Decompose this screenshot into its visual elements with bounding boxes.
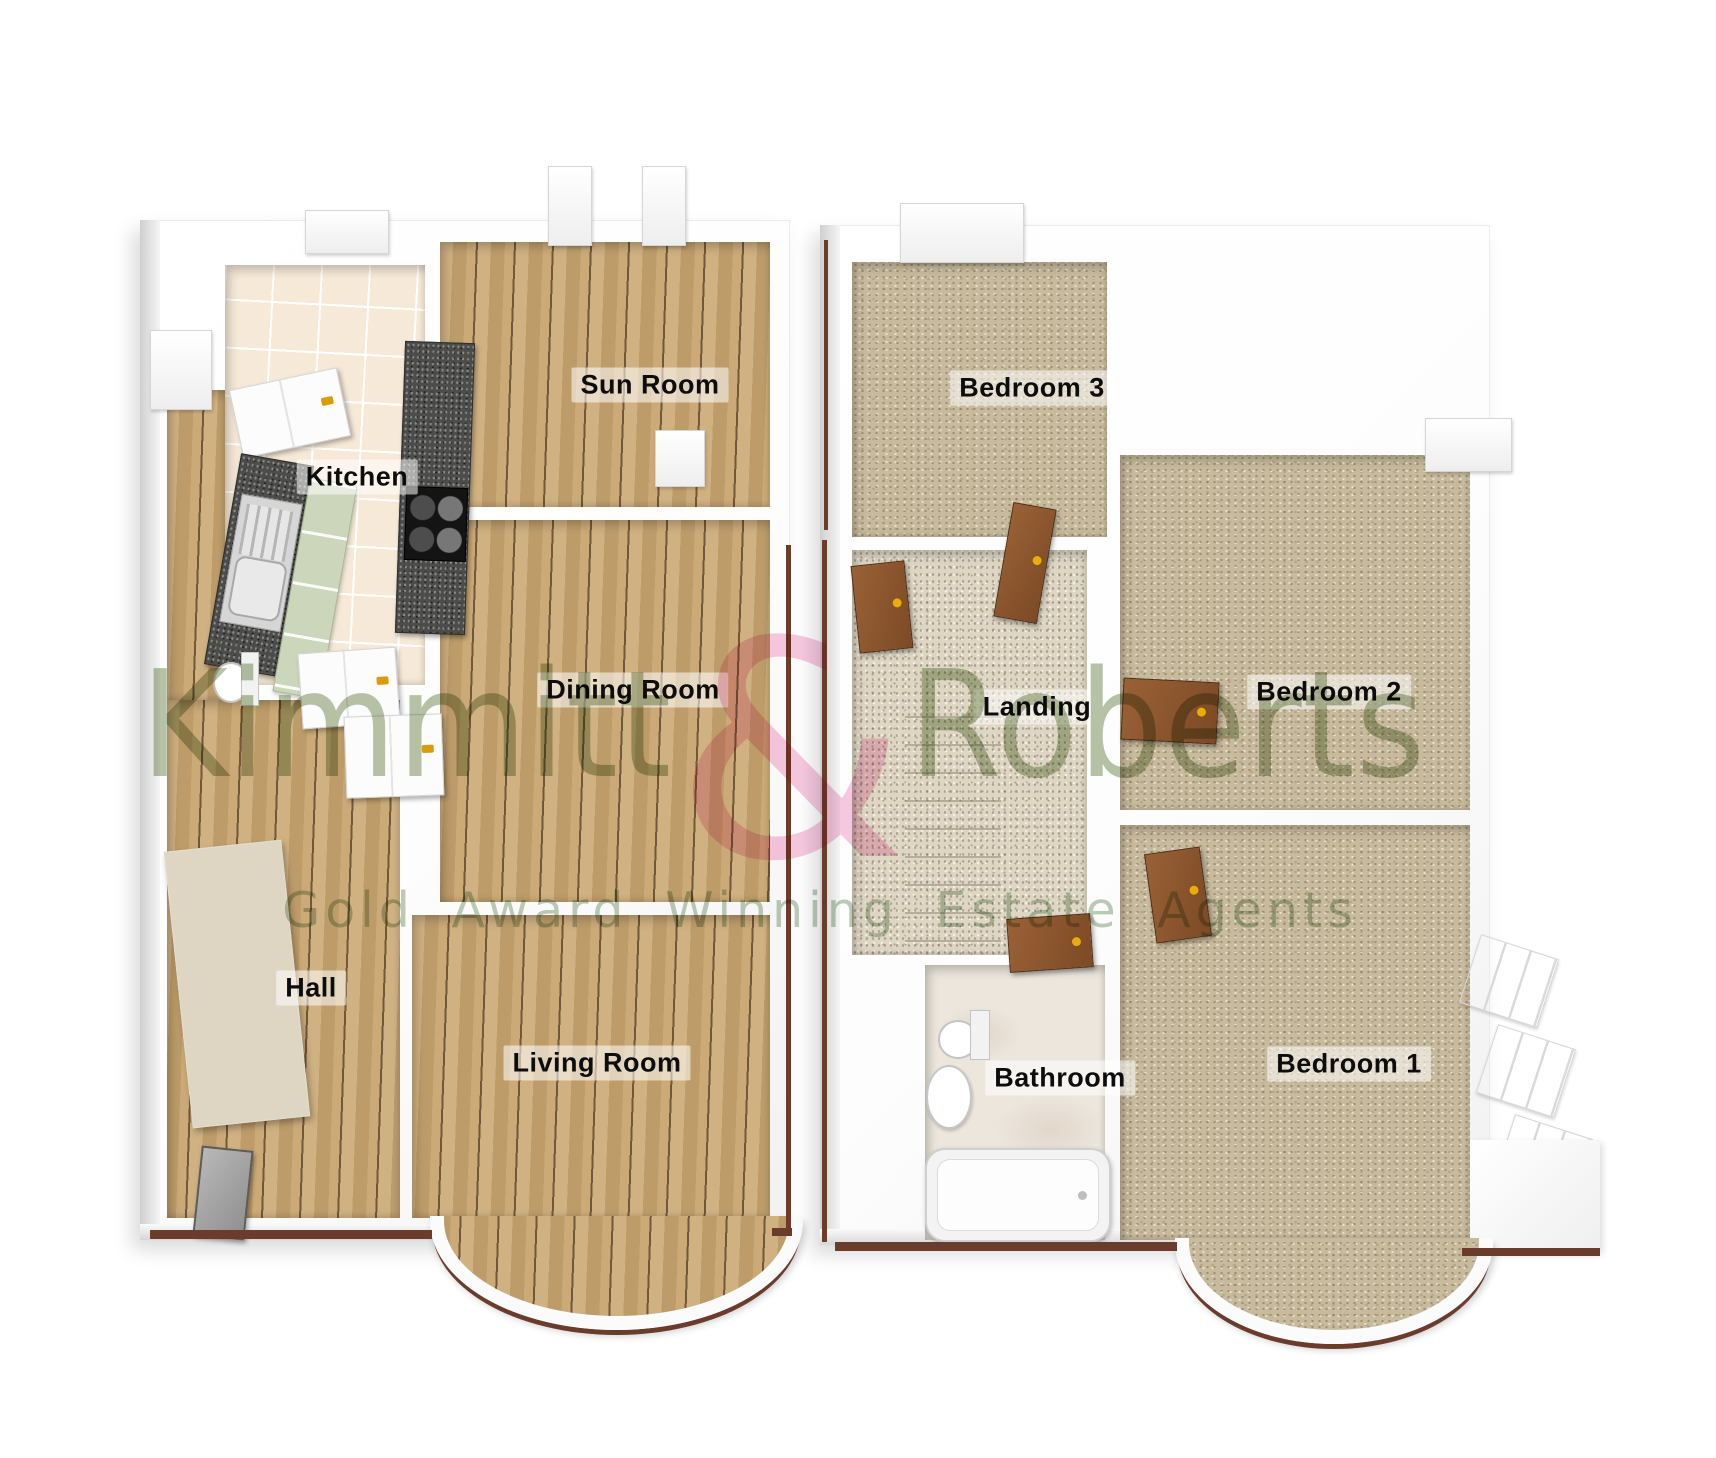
door-handle <box>1188 885 1198 895</box>
sink-drainer <box>238 503 293 562</box>
door-landing <box>851 560 914 653</box>
label-kitchen: Kitchen <box>297 460 418 495</box>
bathtub-inner <box>937 1159 1099 1231</box>
stairwell-opening <box>905 690 1001 948</box>
room-bedroom-2 <box>1120 455 1470 810</box>
door-handle <box>377 676 390 685</box>
label-bathroom: Bathroom <box>985 1061 1135 1096</box>
bay-floor-wood <box>430 1216 803 1316</box>
window-sun-room-1 <box>548 166 592 246</box>
door-handle <box>321 396 334 406</box>
label-landing: Landing <box>974 690 1100 725</box>
roof-trim-ground-right-edge <box>786 545 791 1235</box>
window-sun-room-2 <box>642 166 686 246</box>
bathroom-toilet <box>938 1010 990 1058</box>
label-bedroom-1: Bedroom 1 <box>1267 1047 1431 1082</box>
label-living-room: Living Room <box>504 1046 691 1081</box>
roof-trim-ground-bottom <box>150 1230 432 1239</box>
french-doors-2 <box>344 713 445 798</box>
cloakroom-toilet <box>213 652 259 704</box>
door-bedroom-2 <box>1120 678 1219 745</box>
window-bedroom-2-right <box>1425 418 1512 472</box>
label-bedroom-2: Bedroom 2 <box>1247 675 1411 710</box>
roof-trim-first-top-left <box>824 240 828 530</box>
roof-trim-first-left-edge <box>822 540 827 1242</box>
label-hall: Hall <box>276 971 346 1006</box>
bay-window-bedroom-1 <box>1175 1238 1493 1344</box>
door-handle <box>1196 708 1205 717</box>
bay-window-living-room <box>430 1216 803 1330</box>
room-dining-room <box>440 520 770 902</box>
door-handle <box>422 745 434 753</box>
window-bedroom-1-right-2 <box>1476 1024 1576 1118</box>
label-dining-room: Dining Room <box>537 673 728 708</box>
window-kitchen-left <box>150 330 212 410</box>
toilet-tank <box>970 1010 990 1060</box>
bathroom-sink <box>926 1065 972 1129</box>
wall-extension-bottom-right <box>1470 1140 1600 1252</box>
roof-trim-first-bottom <box>835 1242 1177 1251</box>
door-handle <box>1032 555 1042 565</box>
label-sun-room: Sun Room <box>572 368 729 403</box>
cooktop <box>404 486 469 562</box>
bay-floor-carpet <box>1175 1238 1493 1330</box>
door-handle <box>892 598 902 608</box>
floorplan-stage: Sun Room Kitchen Dining Room Hall Living… <box>0 0 1716 1458</box>
door-bathroom <box>1006 913 1094 973</box>
bathtub <box>925 1148 1111 1242</box>
window-sill-sun-right <box>655 430 705 487</box>
window-bedroom-3-top <box>900 203 1024 263</box>
sink-bowl <box>226 555 288 623</box>
front-door <box>192 1146 253 1241</box>
door-handle <box>1072 937 1082 947</box>
toilet-tank <box>241 652 259 706</box>
window-kitchen-top <box>305 210 389 254</box>
roof-trim-first-bottom-right <box>1462 1248 1600 1256</box>
label-bedroom-3: Bedroom 3 <box>950 371 1114 406</box>
